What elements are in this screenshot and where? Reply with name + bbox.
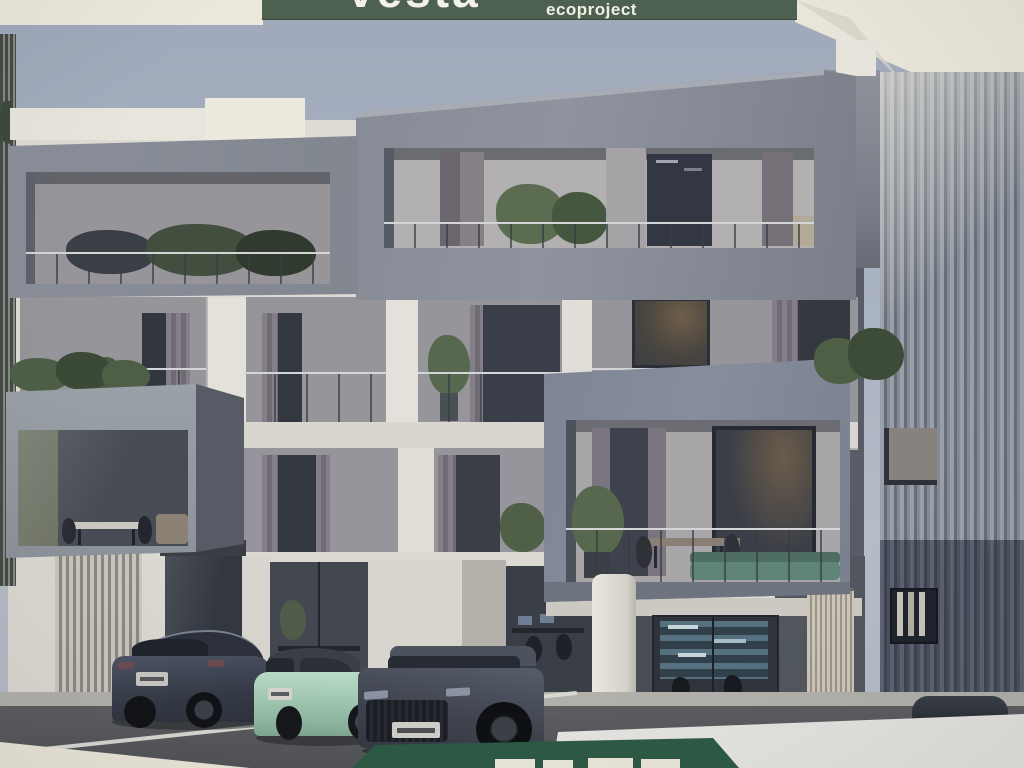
- louver-tower-sunlight: [880, 72, 1024, 372]
- lit-window: [632, 298, 710, 368]
- left-mid-box: [6, 384, 244, 558]
- penthouse-railing: [384, 222, 814, 248]
- glass-sheen: [18, 430, 188, 546]
- slat-window: [890, 588, 938, 644]
- car-taillight: [208, 660, 224, 667]
- left-top-parapet-block: [205, 98, 305, 140]
- slat: [908, 592, 914, 636]
- balcony-railing: [418, 372, 562, 424]
- bush-plant: [500, 503, 546, 552]
- glass-mullion: [712, 617, 714, 701]
- plant-mass: [848, 328, 904, 380]
- header-banner: vesta ecoproject: [262, 0, 797, 20]
- box-opening: [566, 420, 840, 582]
- right-mid-box: [544, 358, 850, 602]
- slat: [897, 592, 903, 636]
- left-top-opening: [26, 172, 330, 284]
- balcony-railing: [244, 372, 386, 424]
- interior-desk: [512, 628, 584, 633]
- footer-letter-top: [543, 760, 573, 768]
- car-taillight: [118, 662, 134, 669]
- penthouse-opening: [384, 148, 814, 248]
- shelf-books: [678, 653, 706, 657]
- facade-sign-panel: [884, 428, 937, 485]
- blue-shelving: [660, 621, 768, 679]
- interior-screens: [518, 616, 532, 625]
- license-plate: [268, 688, 292, 700]
- car-wheel: [276, 706, 302, 740]
- ceiling-light-streak: [684, 168, 702, 171]
- slat: [919, 592, 925, 636]
- interior-plant: [280, 600, 306, 640]
- footer-letter-top: [495, 759, 535, 768]
- car-headlight: [446, 687, 470, 696]
- balcony-railing: [26, 252, 330, 284]
- ceiling-light-streak: [656, 160, 678, 163]
- interior-chair: [556, 634, 572, 660]
- second-floor-recess: [244, 448, 546, 552]
- penthouse-parapet: [836, 40, 876, 76]
- plate-text-smudge: [397, 728, 435, 733]
- shelf-books: [668, 625, 698, 629]
- plate-text-smudge: [140, 677, 164, 681]
- car-wheel: [186, 692, 222, 728]
- curtain: [262, 455, 278, 552]
- brand-subtitle: ecoproject: [546, 0, 637, 19]
- photo-margin-top-left: [0, 0, 263, 25]
- box-opening: [18, 430, 188, 546]
- footer-letter-top: [641, 759, 680, 768]
- right-box-top-plant: [814, 328, 906, 402]
- opening-shadow: [26, 172, 330, 184]
- license-plate: [136, 672, 168, 686]
- shelf-books: [712, 639, 746, 643]
- plate-text-smudge: [271, 692, 289, 696]
- left-top-box: [8, 136, 358, 298]
- license-plate: [392, 722, 440, 738]
- brand-wordmark: vesta: [348, 0, 481, 13]
- car-wheel: [124, 696, 156, 728]
- box-front-face: [6, 384, 196, 558]
- footer-letter-top: [588, 758, 633, 768]
- poster-photo: vesta ecoproject: [0, 0, 1024, 768]
- box-side-face: [196, 384, 244, 558]
- curtain: [316, 455, 330, 552]
- car-suv-coupe-rear: [112, 630, 274, 730]
- curtain: [438, 455, 456, 552]
- white-pier: [398, 448, 434, 552]
- car-headlight: [364, 690, 388, 700]
- white-pier: [386, 297, 418, 422]
